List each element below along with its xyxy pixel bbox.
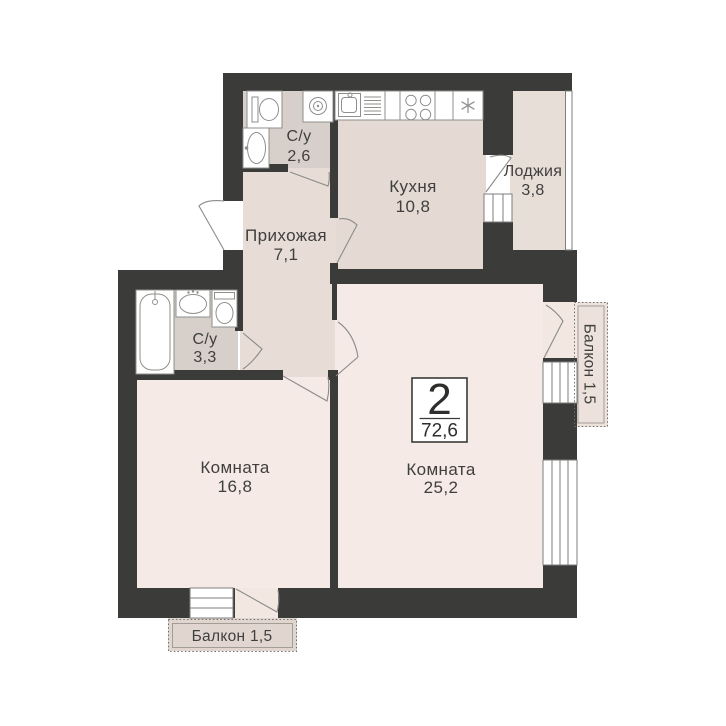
washing-machine-icon [303,91,333,122]
wall-bottom-2 [278,588,577,618]
wall-left-upper [223,91,243,201]
balcony-bottom-label: Балкон 1,5 [192,628,273,645]
window-loggia-glazing [566,91,573,250]
entrance-door-swing [199,201,224,250]
bathroom-big-area: 3,3 [193,349,216,366]
area-badge: 2 72,6 [412,375,467,442]
bathroom-small-area: 2,6 [287,148,310,165]
kitchen-name: Кухня [389,177,437,196]
wall-room1-room2 [330,373,338,588]
loggia-area: 3,8 [521,182,544,199]
rooms-count: 2 [427,375,451,424]
hallway-floor [240,168,336,378]
room-1-name: Комната [200,458,270,477]
wall-hall-room2 [332,284,337,320]
wall-kitchen-loggia-top [483,91,513,155]
kitchen-area: 10,8 [396,197,431,216]
total-area: 72,6 [421,421,458,442]
window-room1-bottom [190,588,233,618]
wall-left-lower [118,290,137,618]
sink-icon [243,128,269,168]
bathroom-small-name: С/у [287,128,312,145]
toilet-icon [247,91,282,128]
window-kitchen-loggia [484,194,512,222]
bathroom-big-name: С/у [193,331,218,348]
hallway-name: Прихожая [245,226,327,245]
room-2-name: Комната [406,460,476,479]
wall-kitchen-loggia-bottom [483,222,513,250]
room-1-area: 16,8 [218,477,253,496]
sink-icon [176,290,210,317]
kitchen-counter [335,91,483,120]
wall-right-top [543,284,577,302]
entrance-door-gap [225,201,243,250]
loggia-name: Лоджия [504,163,563,180]
hallway-area: 7,1 [274,245,299,264]
wall-kitchen-bottom [330,269,543,284]
toilet-icon [212,290,237,327]
floorplan-canvas: С/у 2,6 Кухня 10,8 Лоджия 3,8 Прихожая 7… [0,0,726,726]
bathtub-icon [136,290,174,374]
wall-kitchen-left-stub [330,263,338,271]
wall-top [223,73,572,91]
balcony-right-label: Балкон 1,5 [581,324,598,405]
room-2-area: 25,2 [424,478,459,497]
wall-left-step [118,270,243,290]
floorplan-svg: С/у 2,6 Кухня 10,8 Лоджия 3,8 Прихожая 7… [0,0,726,726]
